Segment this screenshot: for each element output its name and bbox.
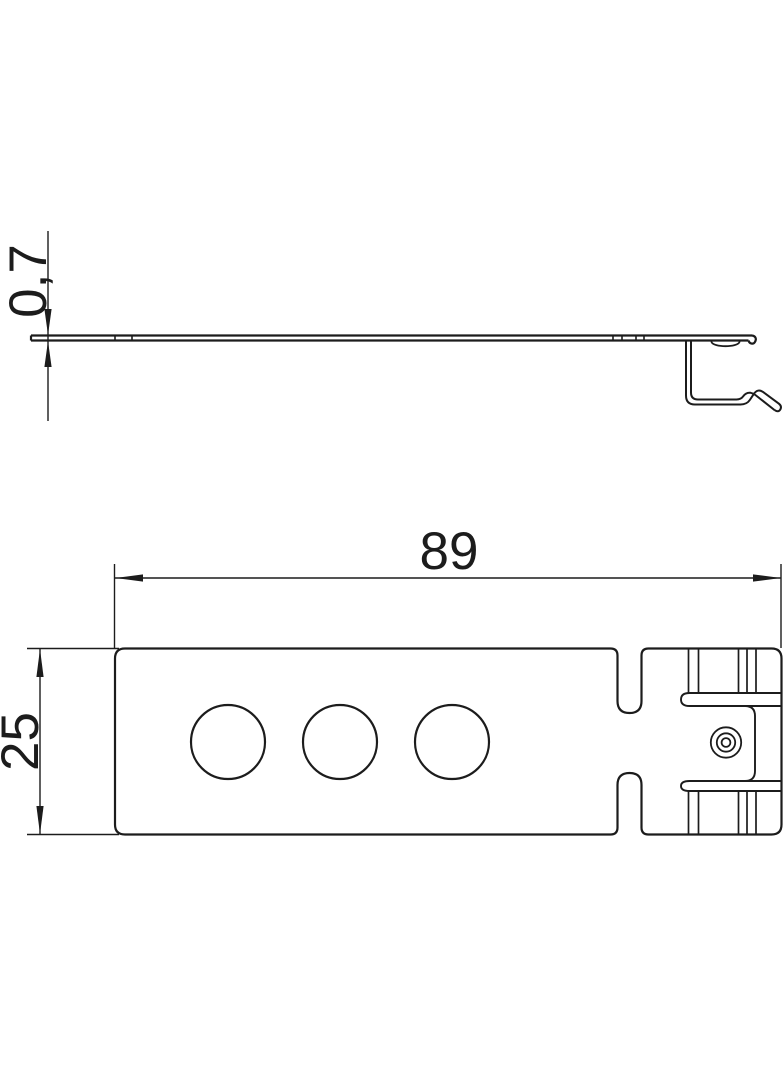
arrowhead-left-icon [115, 574, 143, 581]
rivet-middle-ring [717, 733, 735, 751]
arrowhead-right-icon [753, 574, 781, 581]
plan-view-holes [191, 705, 489, 779]
dimension-thickness-value: 0,7 [0, 244, 58, 318]
dimension-width-value: 25 [0, 712, 50, 771]
lower-slit-hook [681, 781, 692, 791]
side-view-spring-clip [686, 341, 781, 412]
hole-1 [191, 705, 265, 779]
arrowhead-down-icon [36, 806, 43, 834]
upper-slit-hook [681, 693, 692, 706]
arrowhead-up-icon [44, 341, 51, 367]
dimension-thickness: 0,7 [0, 231, 58, 421]
dimension-width: 25 [0, 649, 119, 835]
technical-drawing-canvas: 0,7 [0, 0, 784, 1066]
rivet-outer-ring [711, 727, 741, 757]
side-view-right-lip [749, 336, 756, 344]
plan-view-rivet [711, 727, 741, 757]
hole-2 [303, 705, 377, 779]
dimension-length: 89 [115, 522, 782, 648]
plan-view [115, 649, 782, 835]
hole-3 [415, 705, 489, 779]
plan-view-upper-slit [681, 693, 782, 706]
plan-view-plate-outline [115, 649, 782, 835]
side-view [31, 336, 781, 412]
arrowhead-up-icon [36, 649, 43, 677]
drawing-page: 0,7 [0, 0, 784, 1066]
plan-view-lower-slit [681, 781, 782, 791]
side-view-plate [31, 336, 756, 344]
plan-view-fold-lines-upper [689, 649, 757, 693]
plan-view-fold-lines-lower [689, 791, 757, 834]
rivet-center [722, 738, 731, 747]
dimension-length-value: 89 [420, 522, 479, 581]
